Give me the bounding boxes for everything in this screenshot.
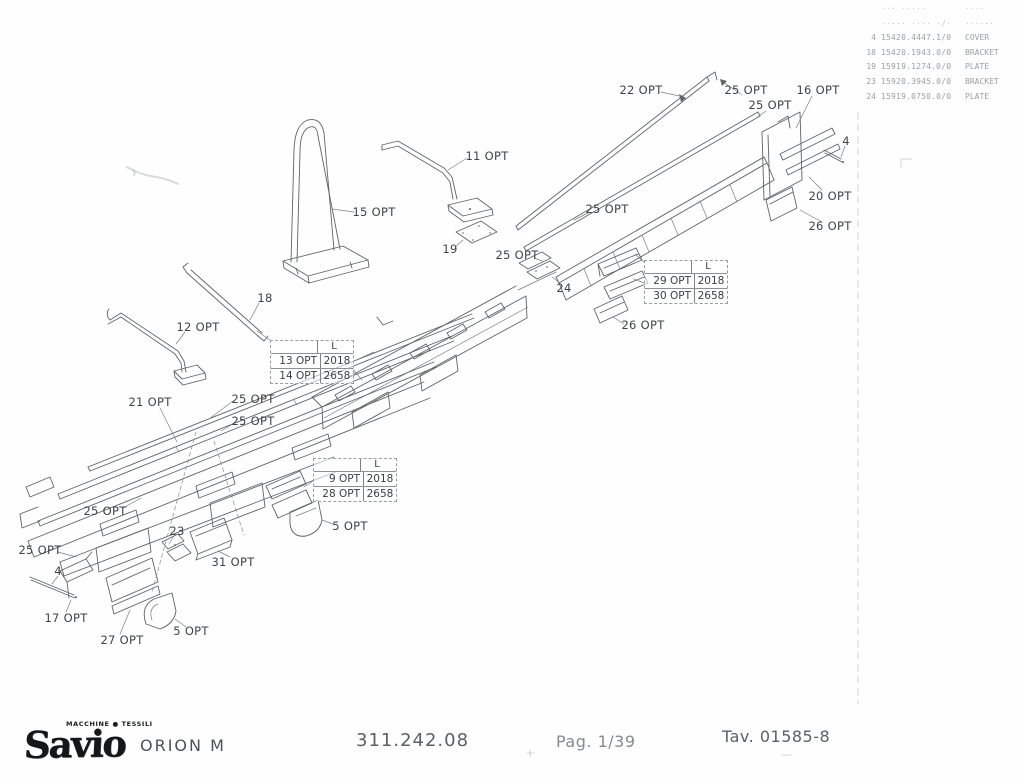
part-callout: 25 OPT: [748, 98, 791, 112]
catalog-code: 311.242.08: [356, 730, 469, 751]
part-description: PLATE: [965, 90, 1024, 105]
table-number: Tav. 01585-8: [722, 727, 830, 746]
parts-table-row: 2415919.0750.0/0PLATE: [860, 90, 1024, 105]
option-part-label: 13 OPT: [271, 354, 320, 368]
parts-table-row: 2315920.3945.0/0BRACKET: [860, 75, 1024, 90]
part-callout: 16 OPT: [796, 83, 839, 97]
part-callout: 5 OPT: [173, 624, 208, 638]
parts-table-row: ····· ···· ·/·······: [860, 17, 1024, 32]
scanned-parts-catalog-page: 22 OPT25 OPT16 OPT25 OPT411 OPT15 OPT20 …: [0, 0, 1024, 784]
part-callout: 11 OPT: [465, 149, 508, 163]
part-callout: 21 OPT: [128, 395, 171, 409]
part-code: ····· ···· ·/·: [881, 17, 965, 32]
part-callout: 24: [556, 281, 571, 295]
option-box-header: L: [317, 341, 350, 353]
option-box-row: 9 OPT2018: [314, 471, 396, 486]
part-callout: 12 OPT: [176, 320, 219, 334]
page-number: Pag. 1/39: [556, 732, 636, 751]
option-variant-value: 2018: [694, 274, 727, 288]
option-variant-value: 2018: [320, 354, 353, 368]
part-description: ······: [965, 17, 1024, 32]
part-callout: 26 OPT: [808, 219, 851, 233]
part-position: 18: [860, 46, 876, 61]
part-code: 15919.0750.0/0: [881, 90, 965, 105]
part-callout: 18: [257, 291, 272, 305]
part-callout: 25 OPT: [585, 202, 628, 216]
machine-model: ORION M: [140, 736, 226, 755]
part-position: 19: [860, 60, 876, 75]
part-callout: 5 OPT: [332, 519, 367, 533]
parts-list-table: ··· ·············· ···· ·/·······415420.…: [860, 2, 1024, 104]
part-code: 15919.1274.0/0: [881, 60, 965, 75]
part-description: PLATE: [965, 60, 1024, 75]
option-part-label: 30 OPT: [645, 289, 694, 303]
logo-wordmark: Savio: [23, 721, 126, 767]
option-box-row: 29 OPT2018: [645, 273, 727, 288]
part-callout: 20 OPT: [808, 189, 851, 203]
part-callout: 27 OPT: [100, 633, 143, 647]
part-callout: 23: [169, 524, 184, 538]
part-position: 24: [860, 90, 876, 105]
option-box-row: 14 OPT2658: [271, 368, 353, 383]
parts-table-row: 1815420.1943.0/0BRACKET: [860, 46, 1024, 61]
part-callout: 26 OPT: [621, 318, 664, 332]
part-position: [860, 17, 876, 32]
option-variant-value: 2658: [694, 289, 727, 303]
option-variant-value: 2658: [320, 369, 353, 383]
part-callout: 4: [54, 564, 62, 578]
part-code: 15420.4447.1/0: [881, 31, 965, 46]
exploded-view-linework: [0, 0, 1024, 784]
part-description: BRACKET: [965, 46, 1024, 61]
option-box-row: 13 OPT2018: [271, 353, 353, 368]
part-callout: 25 OPT: [231, 392, 274, 406]
part-callout: 19: [442, 242, 457, 256]
parts-table-row: 415420.4447.1/0COVER: [860, 31, 1024, 46]
option-variant-box: L29 OPT201830 OPT2658: [644, 260, 728, 304]
part-callout: 25 OPT: [18, 543, 61, 557]
part-description: BRACKET: [965, 75, 1024, 90]
option-part-label: 14 OPT: [271, 369, 320, 383]
parts-table-row: 1915919.1274.0/0PLATE: [860, 60, 1024, 75]
part-description: ····: [965, 2, 1024, 17]
part-position: [860, 2, 876, 17]
part-description: COVER: [965, 31, 1024, 46]
part-callout: 22 OPT: [619, 83, 662, 97]
part-callout: 4: [842, 134, 850, 148]
part-callout: 25 OPT: [724, 83, 767, 97]
part-callout: 25 OPT: [231, 414, 274, 428]
part-code: ··· ·····: [881, 2, 965, 17]
option-variant-box: L9 OPT201828 OPT2658: [313, 458, 397, 502]
part-code: 15920.3945.0/0: [881, 75, 965, 90]
part-callout: 17 OPT: [44, 611, 87, 625]
option-part-label: 9 OPT: [314, 472, 363, 486]
part-position: 4: [860, 31, 876, 46]
option-variant-value: 2658: [363, 487, 396, 501]
option-part-label: 28 OPT: [314, 487, 363, 501]
part-code: 15420.1943.0/0: [881, 46, 965, 61]
part-callout: 15 OPT: [352, 205, 395, 219]
option-variant-box: L13 OPT201814 OPT2658: [270, 340, 354, 384]
option-box-header: L: [360, 459, 393, 471]
option-box-row: 30 OPT2658: [645, 288, 727, 303]
part-position: 23: [860, 75, 876, 90]
option-box-header: L: [691, 261, 724, 273]
option-box-row: 28 OPT2658: [314, 486, 396, 501]
part-callout: 31 OPT: [211, 555, 254, 569]
option-variant-value: 2018: [363, 472, 396, 486]
parts-table-row: ··· ·········: [860, 2, 1024, 17]
part-callout: 25 OPT: [495, 248, 538, 262]
part-callout: 25 OPT: [83, 504, 126, 518]
option-part-label: 29 OPT: [645, 274, 694, 288]
